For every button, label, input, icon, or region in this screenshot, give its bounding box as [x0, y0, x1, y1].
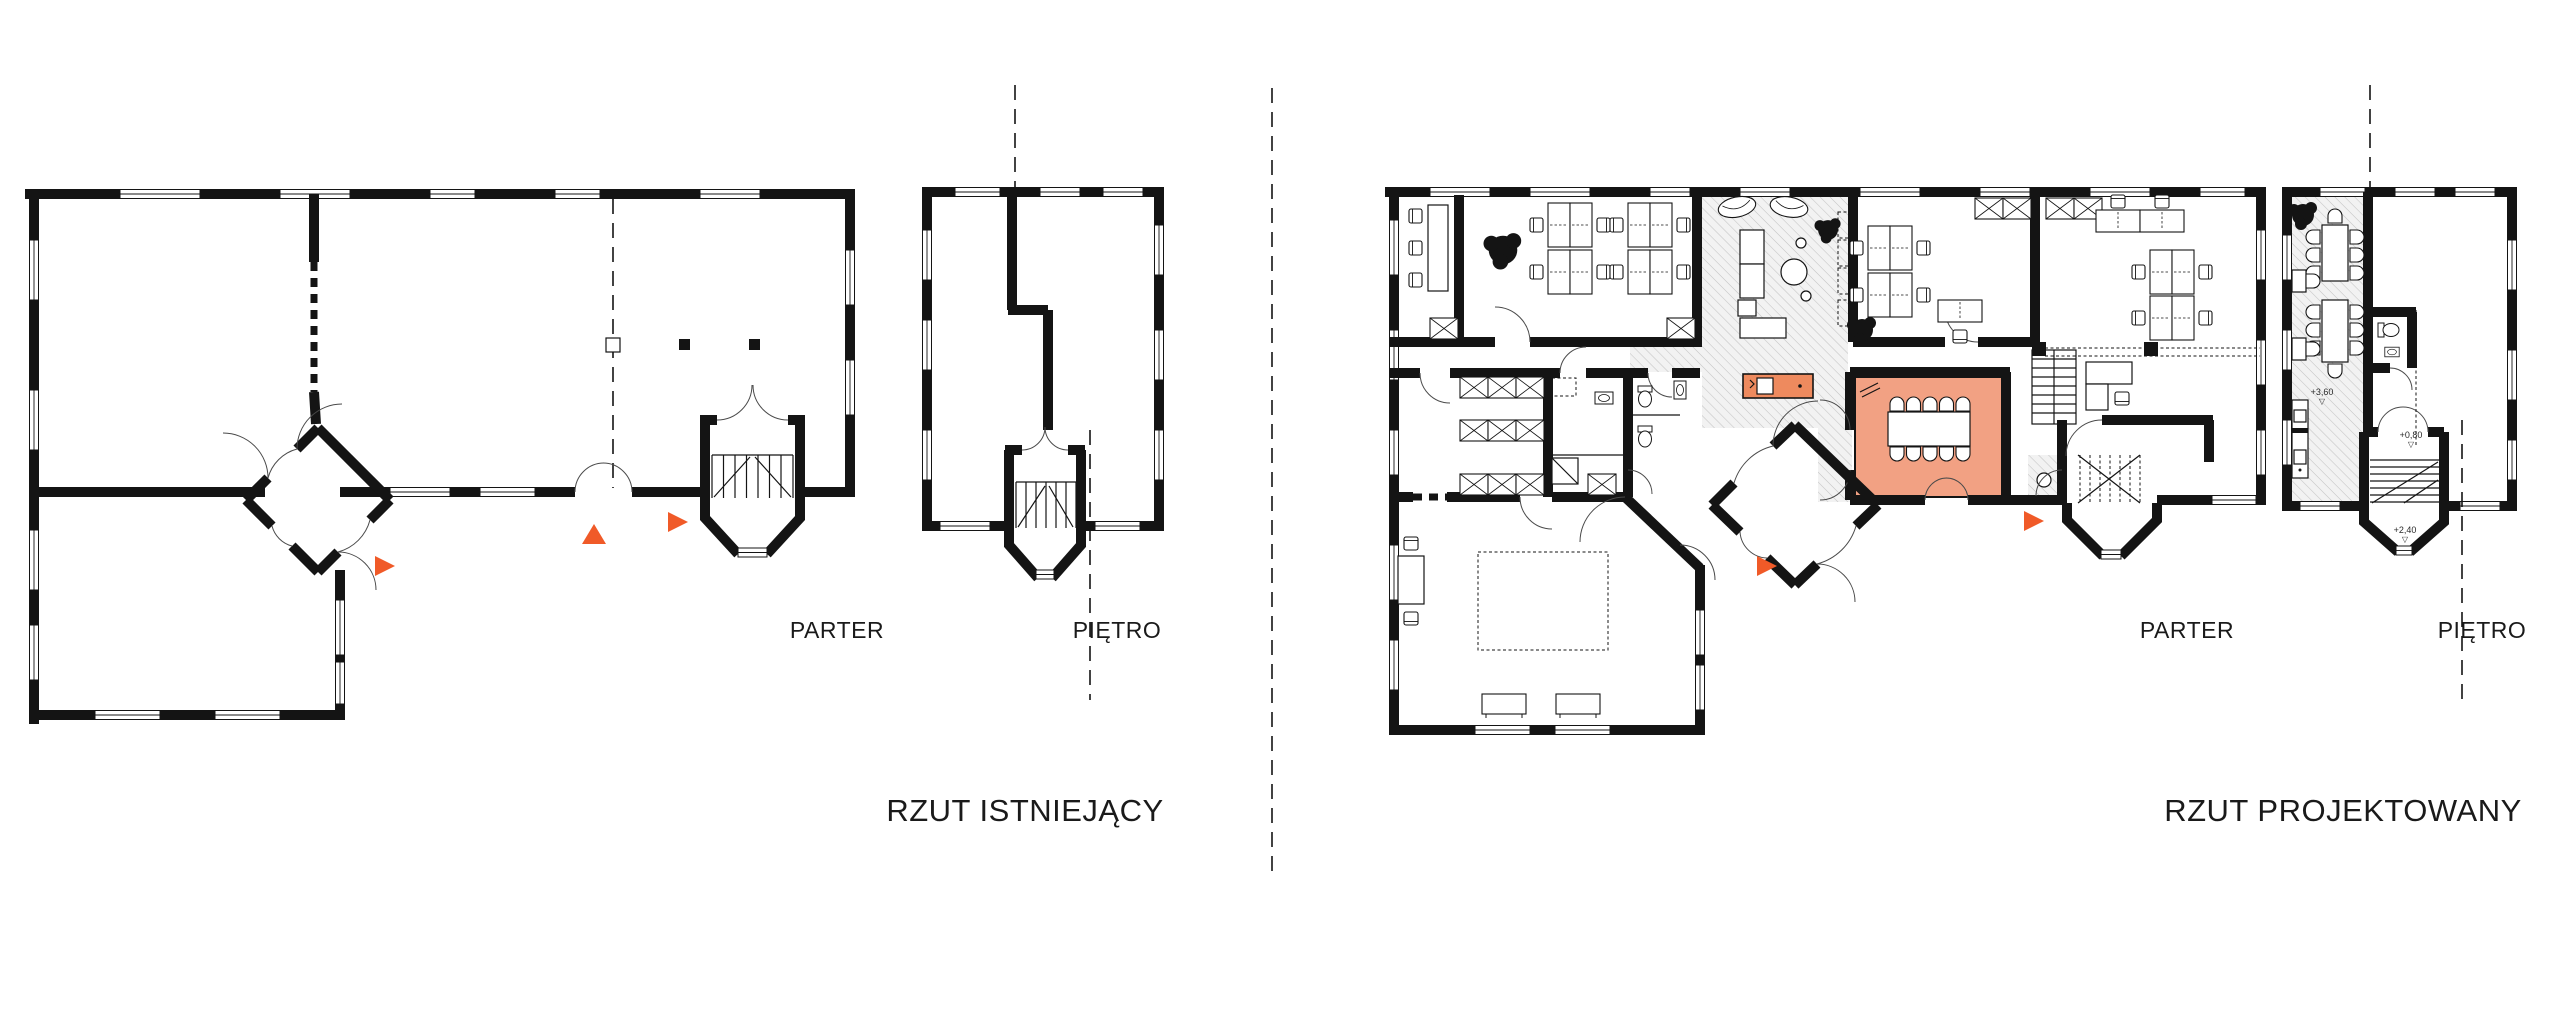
desk: [1398, 556, 1424, 604]
level-mark: +2,40 ▽: [2383, 526, 2427, 545]
floor-label-existing-parter: PARTER: [772, 617, 902, 644]
window: [2460, 502, 2500, 511]
level-triangle-icon: ▽: [2300, 398, 2344, 407]
window: [30, 240, 39, 300]
wc-room: [2378, 323, 2399, 357]
office-middle: [1850, 198, 2031, 343]
door-arc: [1495, 307, 1530, 342]
window: [336, 662, 345, 704]
door-arc: [1648, 373, 1672, 397]
corridor-floor-hatch: [1630, 344, 1848, 372]
window: [1155, 430, 1164, 480]
stool: [2037, 473, 2051, 487]
window: [1696, 610, 1705, 655]
window: [30, 530, 39, 590]
table: [2322, 300, 2348, 362]
window: [940, 522, 990, 531]
window: [2320, 188, 2365, 197]
plan-title-existing: RZUT ISTNIEJĄCY: [830, 793, 1220, 829]
window: [480, 488, 535, 497]
kitchenette: [1743, 374, 1813, 398]
window: [2283, 235, 2292, 280]
kitchen-counter: [2292, 400, 2308, 478]
stair-hall: [2036, 420, 2213, 559]
office-right: [2046, 195, 2212, 340]
conference-table: [1888, 412, 1970, 446]
entrance-arrow: [582, 524, 606, 544]
window: [923, 230, 932, 280]
window: [1475, 726, 1530, 735]
entrance-arrow: [375, 556, 395, 576]
window: [846, 250, 855, 305]
floor-label-existing-pietro: PIĘTRO: [1052, 617, 1182, 644]
window: [2283, 330, 2292, 370]
door-arc: [1420, 373, 1450, 403]
window: [555, 190, 600, 199]
plan-existing-parter: [25, 189, 855, 724]
window: [1860, 188, 1920, 197]
window: [30, 625, 39, 680]
window: [2508, 240, 2517, 290]
staircase: [700, 385, 805, 557]
architectural-drawing-sheet: PARTER PIĘTRO RZUT ISTNIEJĄCY PARTER PIĘ…: [0, 0, 2560, 1024]
window: [1103, 188, 1143, 197]
level-mark: +0,80 ▽: [2389, 431, 2433, 450]
window: [2212, 496, 2256, 505]
window: [1155, 225, 1164, 275]
column: [749, 339, 760, 350]
floor-label-proposed-pietro: PIĘTRO: [2417, 617, 2547, 644]
plan-existing-pietro: [922, 85, 1164, 700]
window: [2300, 502, 2340, 511]
window: [1155, 330, 1164, 380]
office-open-space: [1484, 203, 1696, 339]
wc-room: [1552, 378, 1686, 494]
window: [2508, 440, 2517, 480]
floor-plans-drawing: [0, 0, 2560, 1024]
level-triangle-icon: ▽: [2389, 441, 2433, 450]
door-arc: [1520, 497, 1552, 529]
window: [430, 190, 475, 199]
window: [1390, 430, 1399, 475]
window: [30, 390, 39, 450]
window: [2257, 340, 2266, 385]
rooflight-dashed: [1478, 552, 1608, 650]
double-door: [575, 463, 632, 492]
door-arc: [1560, 347, 1586, 373]
window: [1530, 188, 1590, 197]
window: [2200, 188, 2245, 197]
level-mark: +3,60 ▽: [2300, 388, 2344, 407]
plant-icon: [1484, 233, 1522, 269]
window: [1390, 220, 1399, 275]
window: [923, 430, 932, 480]
office-small: [1409, 205, 1458, 339]
window: [2283, 420, 2292, 465]
column: [679, 339, 690, 350]
window: [1740, 188, 1790, 197]
level-value: +2,40: [2394, 525, 2417, 535]
window: [846, 360, 855, 415]
door-arc: [2390, 368, 2412, 390]
window: [1095, 522, 1140, 531]
window: [120, 190, 200, 199]
level-triangle-icon: ▽: [2383, 536, 2427, 545]
level-value: +3,60: [2311, 387, 2334, 397]
staircase: [2032, 350, 2076, 424]
table: [2322, 225, 2348, 281]
diagonal-wall: [1625, 497, 1700, 568]
wall-marker: [606, 338, 620, 352]
column: [2144, 342, 2158, 356]
floor-label-proposed-parter: PARTER: [2122, 617, 2252, 644]
window: [2455, 188, 2495, 197]
multipurpose-room: [1398, 537, 1608, 718]
entrance-arrow: [2024, 511, 2044, 531]
window: [1390, 640, 1399, 690]
column: [2032, 342, 2046, 356]
window: [1650, 188, 1690, 197]
wall-table: [2292, 270, 2306, 292]
wall-table: [2292, 338, 2306, 360]
bench: [1556, 694, 1600, 718]
window: [336, 600, 345, 655]
window: [1696, 665, 1705, 710]
plan-proposed-parter: [1385, 187, 2266, 735]
window: [2257, 430, 2266, 475]
window: [215, 711, 280, 720]
window: [955, 188, 1000, 197]
window: [1980, 188, 2030, 197]
level-value: +0,80: [2400, 430, 2423, 440]
window: [1390, 545, 1399, 600]
entrance-arrow: [668, 512, 688, 532]
window: [2508, 350, 2517, 400]
door-arc: [1580, 497, 1625, 542]
storage-shelving: [1460, 377, 1616, 495]
plan-title-proposed: RZUT PROJEKTOWANY: [2148, 793, 2538, 829]
window: [2395, 188, 2435, 197]
window: [1555, 726, 1610, 735]
window: [923, 320, 932, 370]
window: [95, 711, 160, 720]
window: [700, 190, 760, 199]
window: [2257, 230, 2266, 280]
reception-desk: [2086, 362, 2132, 410]
bench: [1482, 694, 1526, 718]
window: [1040, 188, 1080, 197]
interior-wall: [314, 392, 316, 424]
staircase: [1005, 427, 1085, 579]
window: [390, 488, 450, 497]
